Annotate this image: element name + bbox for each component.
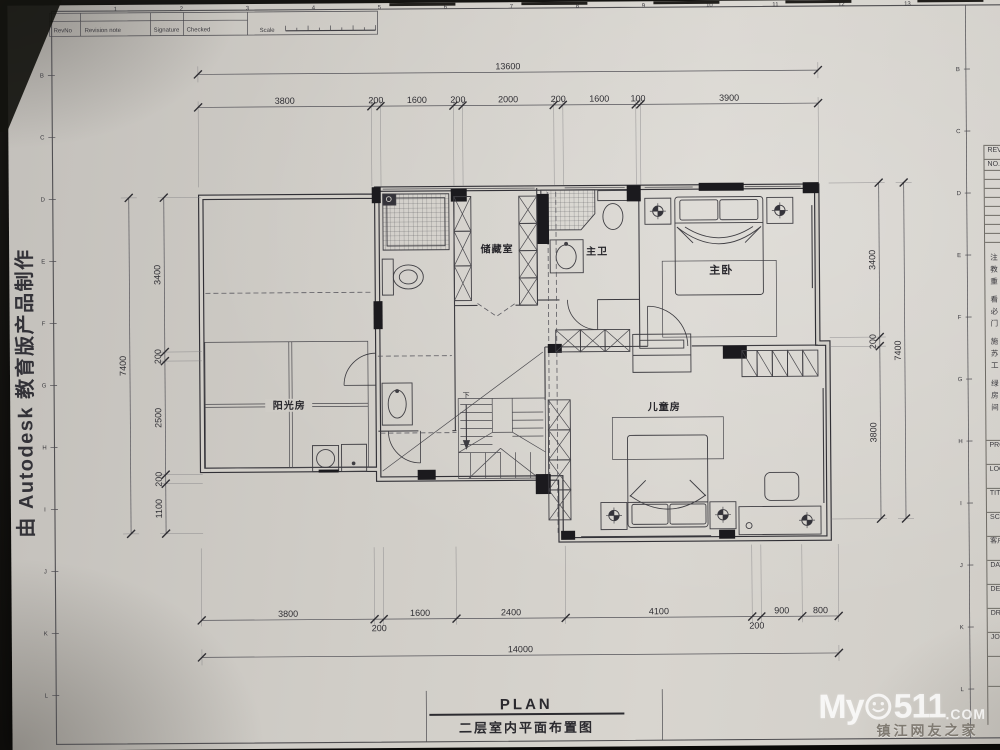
scale-label: Scale — [260, 28, 276, 34]
dim-text: 100 — [630, 93, 645, 103]
wardrobe-cell — [519, 278, 537, 305]
revision-note-label: Revision note — [85, 28, 122, 34]
dim-text: D — [957, 191, 962, 197]
dim-text: L — [45, 693, 49, 699]
wall-pier — [451, 189, 467, 202]
toilet-tank — [598, 190, 628, 200]
closet-cell — [757, 350, 772, 376]
room-label-childrens-room: 儿童房 — [647, 400, 681, 413]
no-label: NO. — [985, 158, 1000, 170]
field-label: LOC — [987, 463, 1000, 488]
wall-pier — [537, 194, 549, 244]
dim-text: 200 — [372, 623, 387, 633]
room-label-storage: 储藏室 — [480, 242, 514, 255]
field-label: 客户 — [987, 535, 1000, 560]
dim-text: J — [44, 569, 47, 575]
wardrobe-cell — [519, 223, 537, 250]
dim-text: 3800 — [868, 422, 878, 442]
rug — [612, 417, 723, 460]
wardrobe-cell — [605, 329, 630, 351]
dim-text: 3900 — [719, 93, 739, 103]
field-label: DR — [988, 607, 1000, 632]
titleblock-note: 门 — [991, 319, 1000, 328]
dim-text: 9 — [642, 3, 646, 9]
field-label: SCA — [987, 511, 1000, 536]
ceiling-light-icon — [799, 512, 815, 528]
bathroom — [381, 194, 451, 425]
titleblock-note: 工 — [991, 361, 1000, 370]
dim-text: F — [42, 321, 46, 327]
sink-icon — [556, 245, 576, 269]
dim-text: 14000 — [508, 644, 533, 654]
field-label: TIT — [987, 487, 1000, 512]
dim-text: 3800 — [278, 609, 298, 619]
dim-text: 13600 — [495, 61, 520, 71]
rev-label: REV — [984, 144, 1000, 159]
field-label: DAT — [987, 559, 1000, 584]
titleblock-note: 教 — [990, 265, 1000, 274]
field-label: DES — [987, 583, 1000, 608]
dim-text: 4100 — [649, 606, 669, 616]
title-block-column: REVNO.注教重看必门施苏工绿房间PROLOCTITSCA客户DATDESDR… — [983, 144, 1000, 725]
revision-line — [985, 187, 1000, 197]
generated-annotations: 1360038002001600200200020016001003900380… — [39, 0, 1000, 700]
drawing-title: PLAN 二层室内平面布置图 — [426, 689, 662, 742]
floor-plan: 储藏室 主卫 主卧 阳光房 儿童房 下 — [201, 186, 829, 542]
dim-text: G — [958, 377, 963, 383]
ruler-band — [389, 3, 455, 6]
ruler-band — [785, 0, 851, 3]
field-label: PRO — [986, 439, 1000, 464]
wardrobe-cell — [454, 231, 471, 266]
wall-pier — [373, 301, 382, 329]
dim-text: H — [42, 445, 46, 451]
wall-pier — [561, 531, 575, 540]
dim-text: 11 — [772, 2, 779, 8]
chair — [765, 472, 799, 500]
dim-text: K — [44, 631, 48, 637]
revno-label: RevNo — [54, 28, 73, 34]
titleblock-note: 间 — [991, 403, 1000, 412]
bed — [675, 196, 764, 295]
toilet-tank — [382, 259, 393, 295]
pillow — [680, 200, 718, 220]
revision-line — [985, 232, 1000, 242]
titleblock-notes: 注教重看必门施苏工绿房间 — [985, 241, 1000, 440]
titleblock-note: 苏 — [991, 349, 1000, 358]
door-swings — [343, 299, 688, 463]
dim-text: 3400 — [152, 265, 162, 285]
wardrobe-cell — [548, 430, 570, 460]
revision-strip: RevNo Revision note Signature Checked Sc… — [49, 11, 377, 36]
dim-text: 3 — [246, 6, 250, 12]
wall-pier — [627, 185, 641, 201]
revision-line — [985, 205, 1000, 215]
dim-text: 200 — [868, 334, 878, 349]
dim-text: B — [40, 73, 44, 79]
room-label-master-bath: 主卫 — [586, 245, 608, 258]
wall-pier — [803, 182, 819, 193]
dim-text: 200 — [450, 95, 465, 105]
ruler-band — [653, 1, 719, 4]
wall-pier — [723, 346, 747, 359]
dim-text: 200 — [153, 349, 163, 364]
wall-pier — [372, 187, 381, 203]
dim-text: 2400 — [501, 607, 521, 617]
signature-label: Signature — [154, 28, 180, 34]
titleblock-note: 必 — [991, 307, 1000, 316]
dim-text: 1600 — [589, 94, 609, 104]
dim-text: 200 — [551, 94, 566, 104]
dim-text: 200 — [154, 472, 164, 487]
titleblock-note: 绿 — [991, 379, 1000, 388]
pillow — [670, 504, 706, 524]
titleblock-note: 看 — [990, 295, 1000, 304]
dim-text: 7 — [510, 4, 514, 10]
dim-text: 4 — [312, 6, 316, 12]
plan-title-en: PLAN — [500, 696, 553, 713]
toilet-icon — [603, 203, 623, 229]
dim-text: 7400 — [118, 356, 128, 376]
dim-text: E — [957, 253, 961, 259]
dim-text: F — [958, 315, 962, 321]
ceiling-light-icon — [650, 203, 666, 219]
dim-text: B — [956, 67, 960, 73]
ruler-band — [521, 2, 587, 5]
dim-text: L — [961, 687, 965, 693]
ceiling-light-icon — [715, 507, 731, 523]
dim-text: 1 — [114, 7, 118, 13]
dim-text: 1600 — [410, 608, 430, 618]
toilet-icon — [393, 265, 423, 289]
sink-icon — [388, 390, 406, 418]
photo-of-drawing: RevNo Revision note Signature Checked Sc… — [0, 0, 1000, 750]
dim-text: 13 — [904, 1, 911, 7]
closet-cell — [742, 351, 757, 377]
titleblock-row — [988, 655, 1000, 686]
dim-text: C — [956, 129, 961, 135]
ruler-band — [917, 0, 983, 2]
room-label-sunroom: 阳光房 — [273, 399, 306, 412]
revision-line — [985, 178, 1000, 188]
dim-text: I — [960, 501, 962, 507]
dim-text: C — [40, 135, 45, 141]
dim-text: 900 — [774, 605, 789, 615]
drawing-sheet: RevNo Revision note Signature Checked Sc… — [7, 0, 1000, 750]
pillow — [632, 504, 668, 524]
wardrobe-cell — [454, 266, 471, 301]
dim-text: D — [41, 197, 46, 203]
dim-text: 7400 — [893, 340, 903, 360]
staircase — [458, 398, 546, 479]
titleblock-row — [988, 685, 1000, 716]
dim-text: 800 — [813, 605, 828, 615]
titleblock-note: 房 — [991, 391, 1000, 400]
dim-text: 3800 — [275, 96, 295, 106]
revision-line — [985, 169, 1000, 179]
plan-title-cn: 二层室内平面布置图 — [459, 720, 594, 736]
dim-text: 1600 — [407, 95, 427, 105]
checked-label: Checked — [187, 27, 211, 33]
wardrobe-cell — [519, 196, 537, 223]
outer-walls — [201, 186, 829, 542]
sheet-graphics: RevNo Revision note Signature Checked Sc… — [7, 0, 1000, 750]
dim-text: J — [960, 563, 963, 569]
titleblock-note: 施 — [991, 337, 1000, 346]
titleblock-note: 注 — [990, 253, 1000, 262]
ceiling-light-icon — [772, 202, 788, 218]
wall-pier — [418, 470, 436, 480]
closet-cell — [803, 350, 818, 376]
field-label: JO — [988, 631, 1000, 656]
dim-text: 2000 — [498, 94, 518, 104]
dim-text: H — [958, 439, 962, 445]
dim-text: K — [960, 625, 964, 631]
dim-text: 2 — [180, 7, 184, 13]
pillow — [720, 200, 758, 220]
dim-text: I — [44, 507, 46, 513]
master-bathroom — [541, 189, 629, 273]
dim-text: 200 — [368, 95, 383, 105]
titleblock-note: 重 — [990, 277, 1000, 286]
dim-text: 2500 — [153, 408, 163, 428]
wall-pier — [719, 530, 735, 539]
dim-text: 3400 — [867, 250, 877, 270]
wall-pier — [699, 183, 744, 191]
dim-text: E — [41, 259, 45, 265]
ceiling-light-icon — [606, 507, 622, 523]
dim-text: 200 — [749, 620, 764, 630]
revision-line — [985, 214, 1000, 224]
wardrobe-cell — [519, 251, 537, 278]
revision-line — [985, 196, 1000, 206]
wardrobe-cell — [556, 330, 581, 352]
wardrobe-cell — [580, 330, 605, 352]
wardrobe-cell — [548, 400, 570, 430]
dim-text: 1100 — [154, 499, 164, 518]
closet-cell — [787, 350, 802, 376]
autodesk-edge-note: 由 Autodesk 教育版产品制作 — [12, 248, 38, 537]
revision-line — [985, 223, 1000, 233]
dim-text: G — [42, 383, 47, 389]
room-label-master-bedroom: 主卧 — [709, 263, 733, 277]
stair-down-label: 下 — [463, 392, 470, 400]
dim-text: 5 — [378, 5, 382, 11]
closet-cell — [772, 350, 787, 376]
wardrobe-cell — [454, 197, 471, 232]
sheet-border — [51, 4, 1000, 744]
